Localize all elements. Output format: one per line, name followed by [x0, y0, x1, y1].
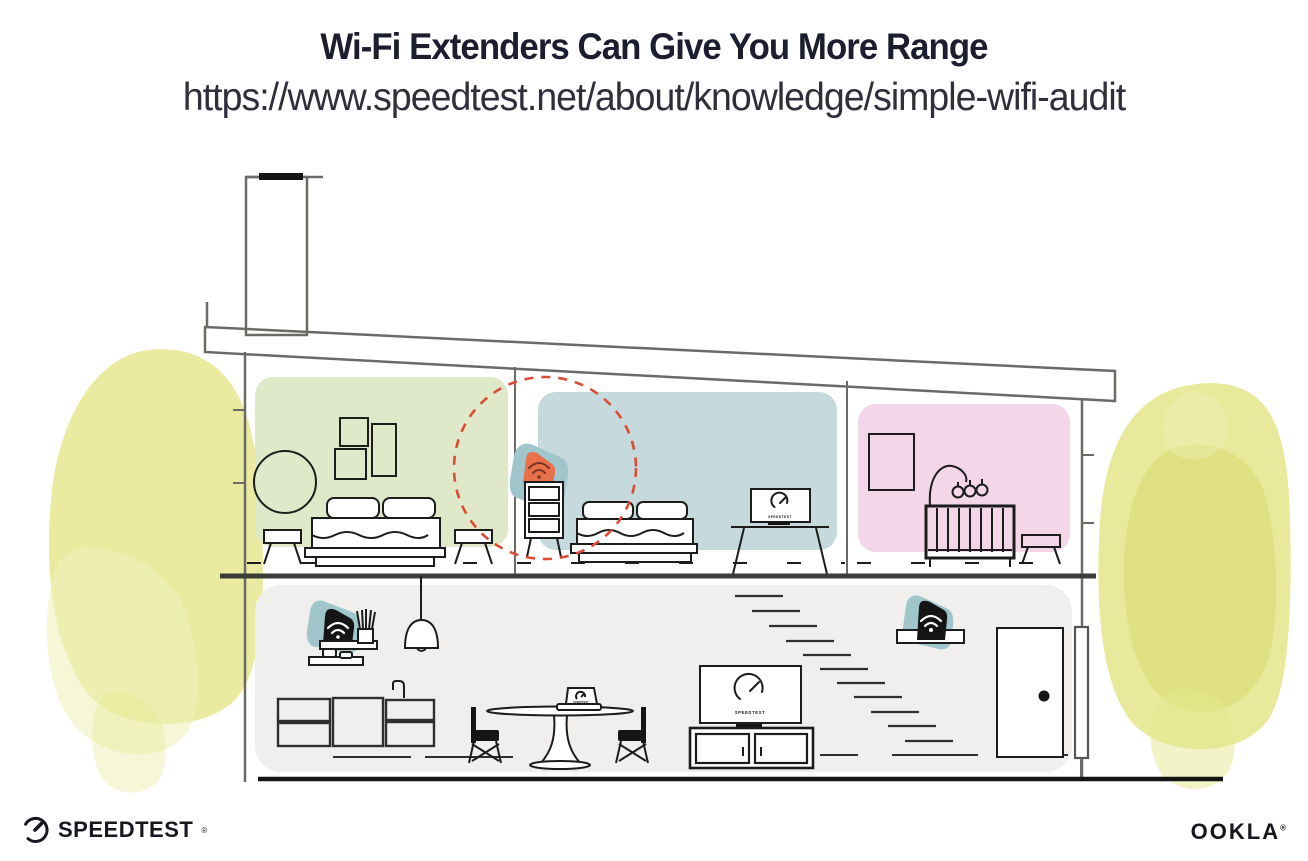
ookla-registered-mark: ® — [1280, 824, 1288, 833]
bed-blue — [571, 502, 697, 562]
footer: SPEEDTEST® OOKLA® — [0, 813, 1308, 847]
bedroom-tv-label: SPEEDTEST — [768, 515, 792, 519]
watercolor-blob-left — [47, 349, 263, 792]
tv-screen-label: SPEEDTEST — [735, 710, 765, 715]
ookla-logo: OOKLA® — [1191, 819, 1288, 845]
tv-console — [690, 728, 813, 768]
entry-door — [997, 628, 1063, 757]
infographic-page: Wi-Fi Extenders Can Give You More Range … — [0, 0, 1308, 861]
door-knob — [1039, 691, 1050, 702]
door-sidelight — [1075, 627, 1088, 779]
chimney — [246, 173, 323, 335]
house-cross-section-illustration: SPEEDTEST — [0, 0, 1308, 861]
cup — [323, 649, 336, 657]
bed-master — [305, 498, 445, 566]
speedtest-gauge-icon — [20, 815, 50, 845]
speedtest-logo: SPEEDTEST® — [20, 815, 207, 845]
lower-shelf-board — [309, 657, 363, 665]
speedtest-wordmark: SPEEDTEST — [58, 817, 193, 843]
bowl — [340, 652, 352, 658]
room-pink-nursery — [858, 404, 1070, 552]
living-room-tv: SPEEDTEST — [700, 666, 801, 728]
speedtest-registered-mark: ® — [201, 826, 207, 835]
ookla-wordmark: OOKLA — [1191, 819, 1280, 844]
watercolor-blob-right — [1098, 383, 1290, 789]
